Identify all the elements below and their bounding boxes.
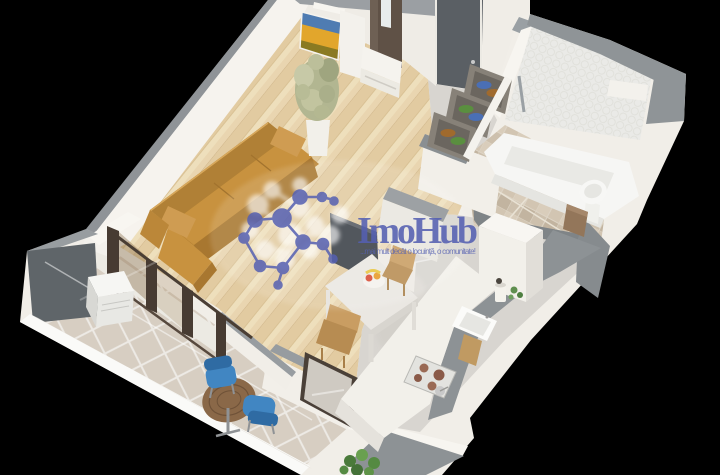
svg-text:...mai mult decât o locuinţă,: ...mai mult decât o locuinţă, o comunita… (360, 247, 476, 256)
svg-text:ImoHub: ImoHub (357, 210, 478, 252)
